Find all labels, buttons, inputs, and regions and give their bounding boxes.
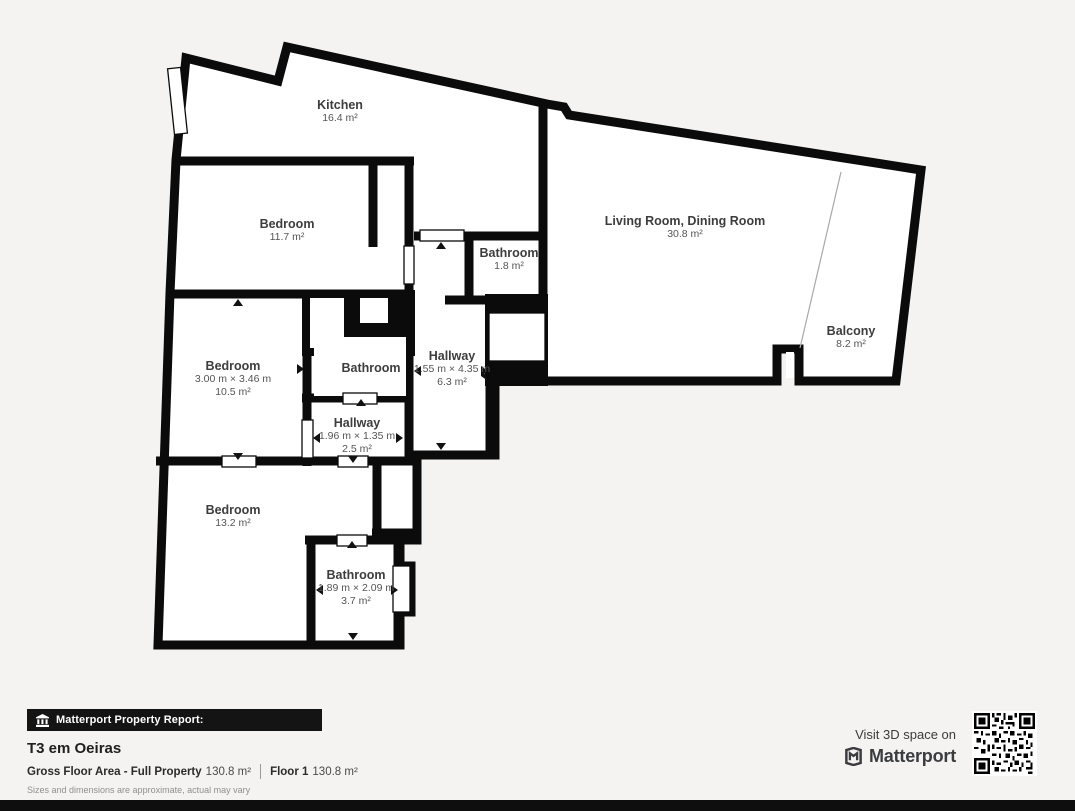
stats-divider xyxy=(260,764,261,779)
gfa-label: Gross Floor Area - Full Property xyxy=(27,766,202,778)
disclaimer-text: Sizes and dimensions are approximate, ac… xyxy=(27,785,358,795)
building-icon xyxy=(36,714,49,727)
window-bedroom1-hallway xyxy=(404,246,414,284)
gfa-value: 130.8 m² xyxy=(206,766,251,778)
area-stats: Gross Floor Area - Full Property 130.8 m… xyxy=(27,764,358,779)
floor-plan-page: Kitchen 16.4 m² Bedroom 11.7 m² Living R… xyxy=(0,0,1075,811)
visit-label: Visit 3D space on xyxy=(844,727,956,742)
report-header-bar: Matterport Property Report: xyxy=(27,709,322,731)
qr-code xyxy=(972,711,1037,776)
door-bedroom2 xyxy=(302,420,313,458)
door-kitchen-hallway xyxy=(420,230,464,241)
matterport-brand: Matterport xyxy=(844,746,956,767)
floor-value: 130.8 m² xyxy=(312,766,357,778)
report-footer: Matterport Property Report: T3 em Oeiras… xyxy=(27,709,358,795)
door-hallway-living xyxy=(489,313,545,361)
property-title: T3 em Oeiras xyxy=(27,740,358,757)
report-label: Matterport Property Report: xyxy=(56,714,204,726)
floor-label: Floor 1 xyxy=(270,766,308,778)
floor-plan xyxy=(0,0,1075,811)
matterport-logo-icon xyxy=(844,747,863,766)
bottom-border-bar xyxy=(0,800,1075,811)
visit-3d-cta: Visit 3D space on Matterport xyxy=(844,727,956,767)
matterport-wordmark: Matterport xyxy=(869,746,956,767)
